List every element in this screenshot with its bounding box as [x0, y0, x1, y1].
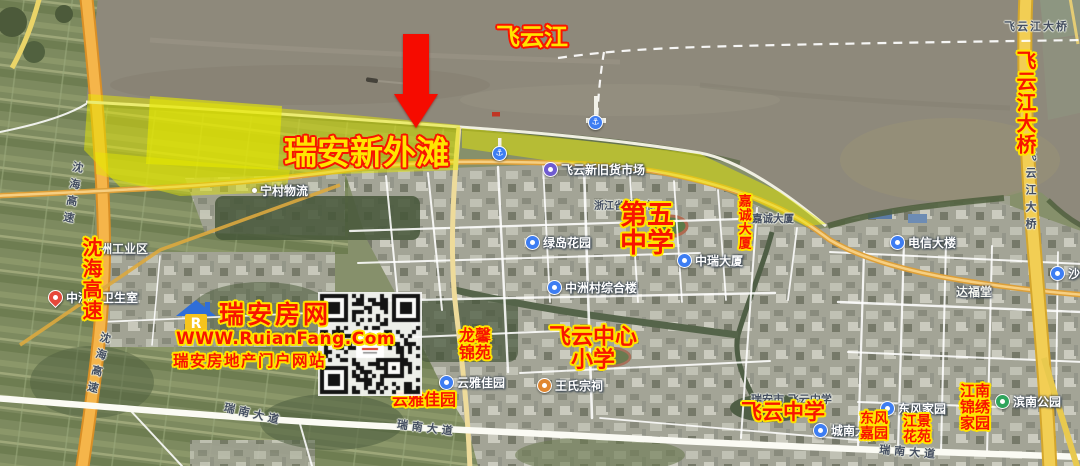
map-poi: 王氏宗祠 — [537, 377, 603, 394]
map-label: 达福堂 — [956, 283, 992, 300]
pier-poi-icon — [588, 115, 603, 130]
annotation-no5-middle-school: 第五 中学 — [620, 202, 674, 259]
map-poi: 中洲村综合楼 — [547, 279, 637, 296]
annotation-longxin-jinyuan: 龙馨 锦苑 — [459, 328, 491, 362]
annotation-shenhai-expressway: 沈海高速 — [80, 237, 101, 321]
map-poi-label: 绿岛花园 — [543, 234, 591, 251]
pin-poi-icon — [45, 287, 66, 308]
dot-poi-icon — [252, 188, 257, 193]
blue-poi-icon — [890, 235, 905, 250]
annotation-jiangjing-huayuan: 江景 花苑 — [903, 415, 931, 444]
map-poi: 飞云新旧货市场 — [543, 161, 645, 178]
map-label: 飞云江大桥 — [1022, 150, 1038, 235]
purple-poi-icon — [543, 162, 558, 177]
map-poi — [588, 115, 603, 130]
satellite-map-viewport[interactable]: R 瑞安房网 WWW.RuianFang.Com 瑞安房地产门户网站 飞云江瑞安… — [0, 0, 1080, 466]
map-poi-label: 王氏宗祠 — [555, 377, 603, 394]
red-arrow-head — [394, 94, 438, 128]
blue-poi-icon — [547, 280, 562, 295]
watermark-site-name: 瑞安房网 — [219, 302, 331, 328]
map-poi-label: 宁村物流 — [260, 182, 308, 199]
map-poi: 滨南公园 — [995, 393, 1061, 410]
annotation-feiyun-river: 飞云江 — [496, 25, 568, 50]
annotation-dongfeng-jiayuan: 东风 嘉园 — [860, 412, 888, 441]
map-poi: 沙塘 — [1050, 265, 1080, 282]
map-poi-label: 云雅佳园 — [457, 374, 505, 391]
map-poi: 中瑞大厦 — [677, 252, 743, 269]
map-poi-label: 中瑞大厦 — [695, 252, 743, 269]
orange-poi-icon — [537, 378, 552, 393]
map-poi-label: 沙塘 — [1068, 265, 1080, 282]
blue-poi-icon — [525, 235, 540, 250]
satellite-map-background — [0, 0, 1080, 466]
map-poi — [492, 146, 507, 161]
annotation-jiangnan-jinxiu-jiayuan: 江南 锦绣 家园 — [960, 384, 990, 431]
map-poi-label: 电信大楼 — [908, 234, 956, 251]
red-arrow-shaft — [403, 34, 429, 96]
blue-poi-icon — [1050, 266, 1065, 281]
map-poi-label: 中洲村综合楼 — [565, 279, 637, 296]
map-poi: 云雅佳园 — [439, 374, 505, 391]
map-poi: 电信大楼 — [890, 234, 956, 251]
map-poi: 绿岛花园 — [525, 234, 591, 251]
map-label: 嘉诚大厦 — [752, 211, 794, 226]
map-label: 飞云江大桥 — [1004, 18, 1069, 34]
watermark-url: WWW.RuianFang.Com — [176, 331, 395, 349]
green-poi-icon — [995, 394, 1010, 409]
annotation-jiacheng-tower: 嘉诚大厦 — [736, 194, 750, 250]
annotation-feiyun-central-primary: 飞云中心 小学 — [549, 326, 637, 372]
map-poi: 宁村物流 — [252, 182, 308, 199]
map-poi-label: 滨南公园 — [1013, 393, 1061, 410]
map-poi-label: 飞云新旧货市场 — [561, 161, 645, 178]
annotation-ruian-new-bund: 瑞安新外滩 — [284, 136, 449, 171]
annotation-feiyunjiang-bridge: 飞云江大桥 — [1014, 50, 1035, 155]
blue-poi-icon — [439, 375, 454, 390]
pier-poi-icon — [492, 146, 507, 161]
blue-poi-icon — [677, 253, 692, 268]
blue-poi-icon — [813, 423, 828, 438]
annotation-feiyun-middle-school: 飞云中学 — [741, 401, 825, 423]
watermark-tagline: 瑞安房地产门户网站 — [173, 353, 326, 369]
